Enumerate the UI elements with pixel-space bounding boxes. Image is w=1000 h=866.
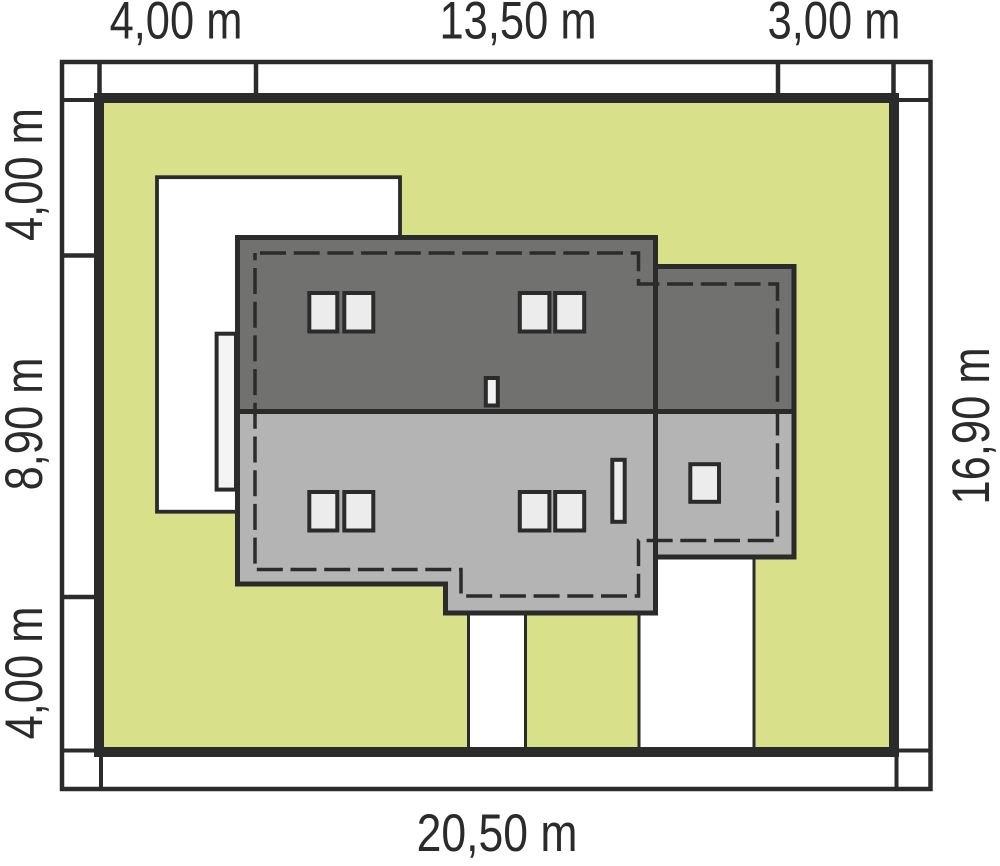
svg-text:4,00 m: 4,00 m [0, 108, 54, 241]
svg-text:4,00 m: 4,00 m [0, 607, 54, 740]
svg-text:3,00 m: 3,00 m [768, 0, 901, 51]
svg-text:8,90 m: 8,90 m [0, 358, 54, 491]
svg-text:20,50 m: 20,50 m [417, 804, 578, 863]
svg-text:4,00 m: 4,00 m [110, 0, 243, 51]
svg-text:13,50 m: 13,50 m [439, 0, 596, 51]
svg-text:16,90 m: 16,90 m [942, 347, 1000, 504]
